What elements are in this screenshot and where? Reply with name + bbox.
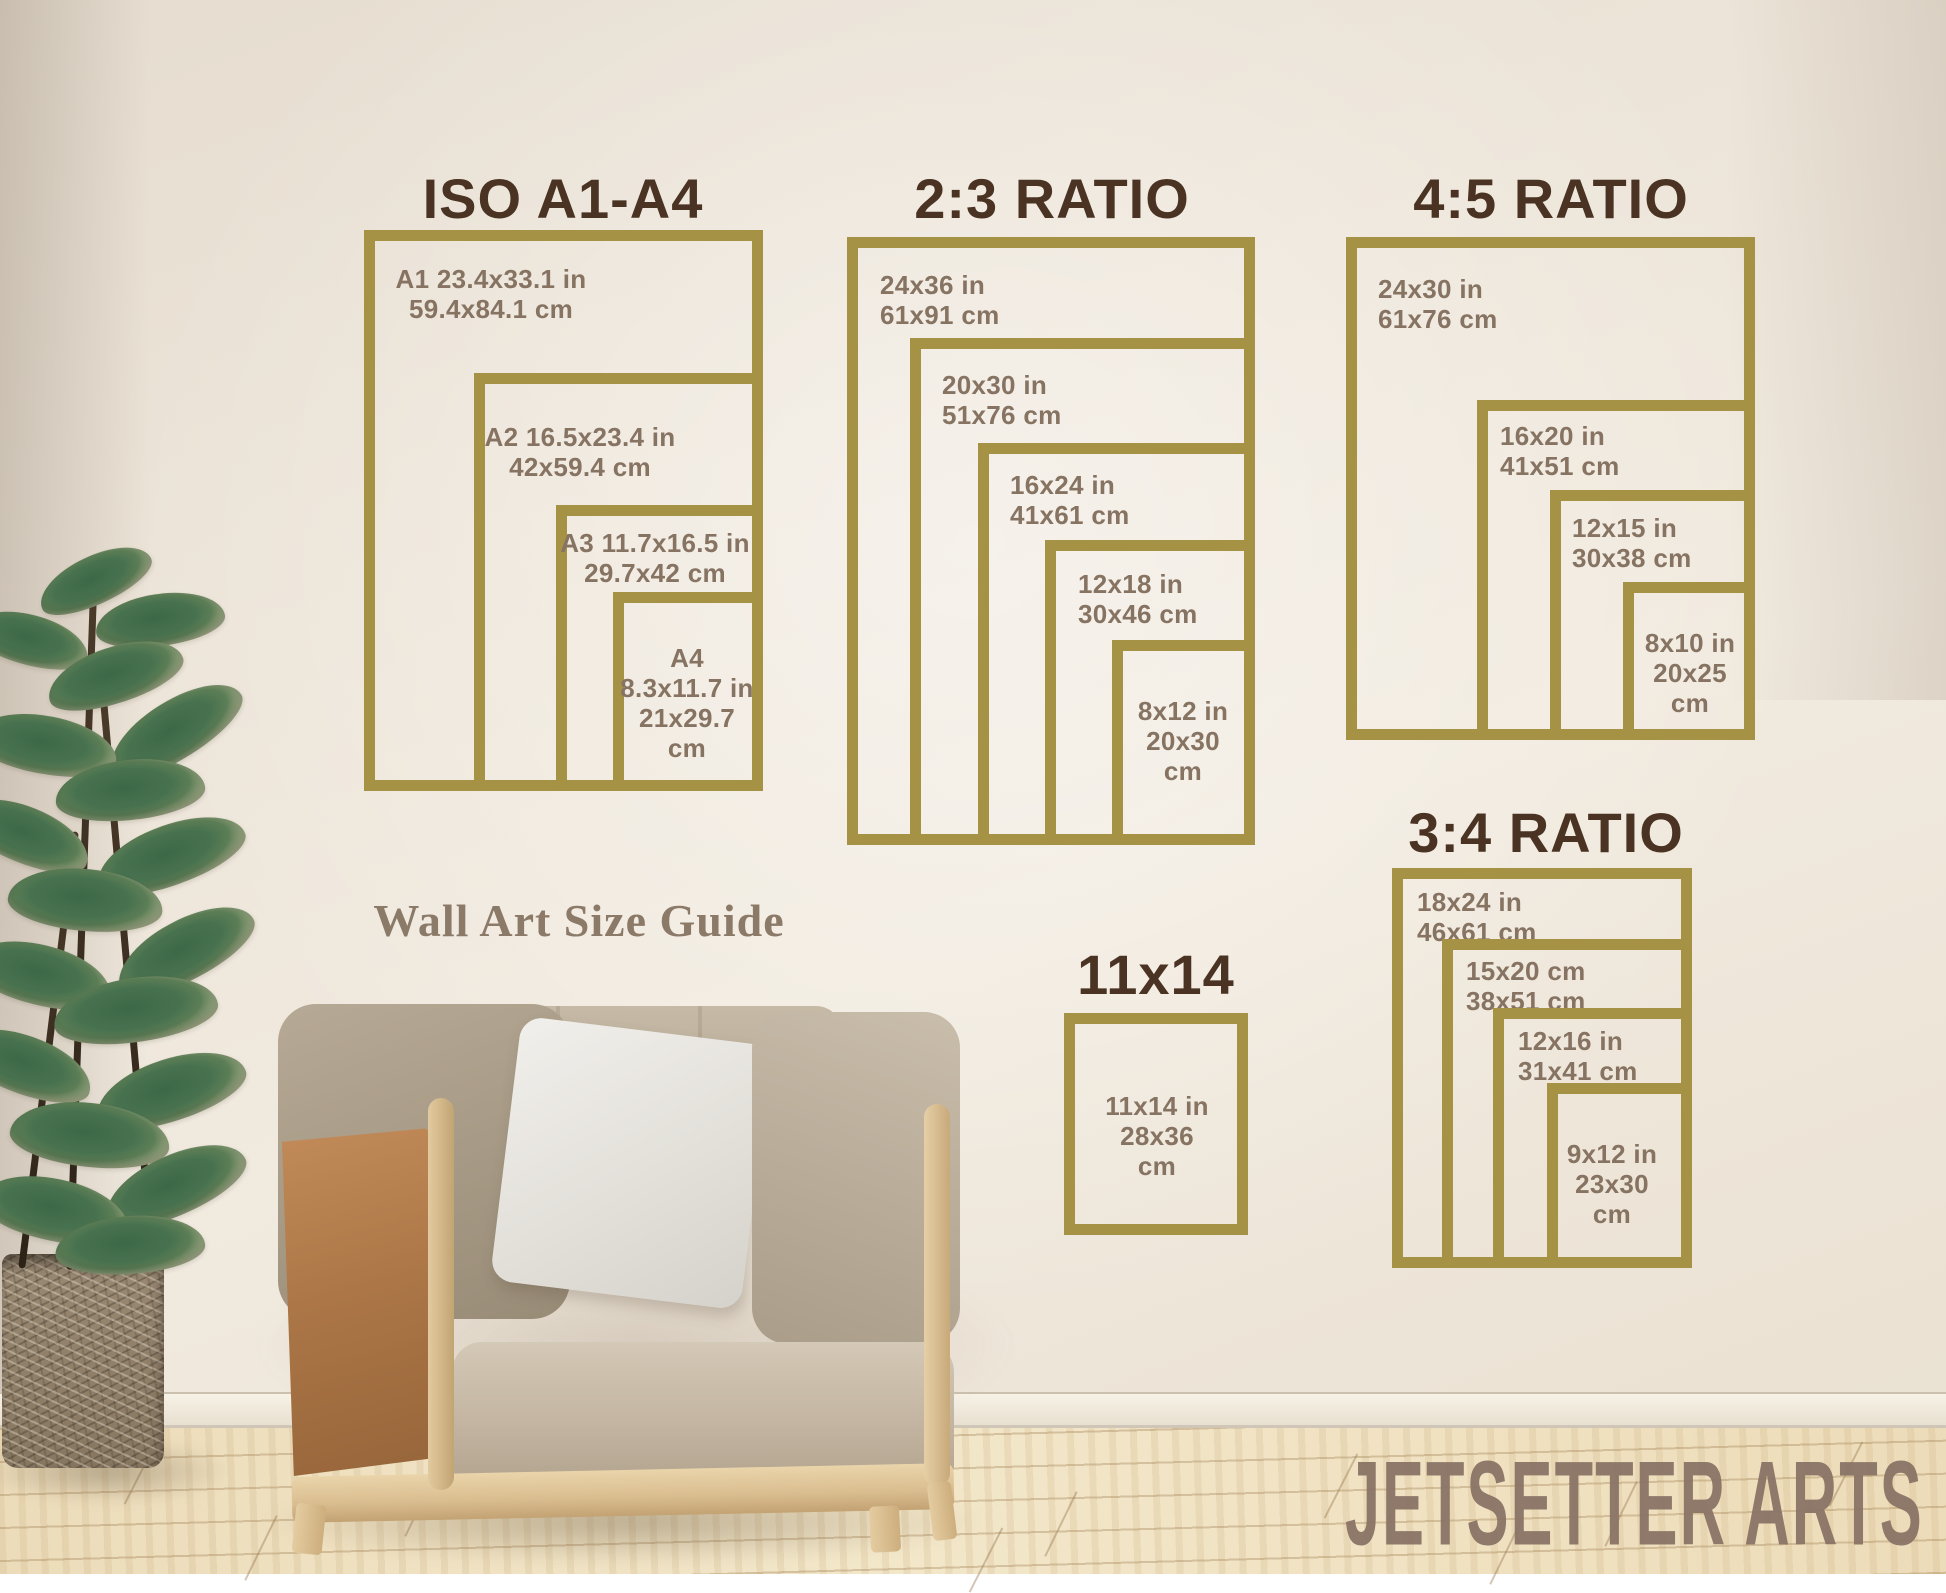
- size-label-A2: A2 16.5x23.4 in 42x59.4 cm: [485, 422, 676, 482]
- section-title: 2:3 RATIO: [914, 166, 1190, 231]
- size-label-9x12: 9x12 in 23x30 cm: [1567, 1139, 1657, 1229]
- chair-leather-side-panel: [282, 1128, 430, 1476]
- size-label-24x30: 24x30 in 61x76 cm: [1378, 274, 1498, 334]
- size-label-A3: A3 11.7x16.5 in 29.7x42 cm: [560, 528, 750, 588]
- size-label-16x24: 16x24 in 41x61 cm: [1010, 470, 1130, 530]
- size-label-A4: A4 8.3x11.7 in 21x29.7 cm: [620, 643, 753, 763]
- section-title: 3:4 RATIO: [1408, 800, 1684, 865]
- size-label-15x20: 15x20 cm 38x51 cm: [1466, 956, 1586, 1016]
- chair-wood-post-left: [428, 1098, 454, 1490]
- size-label-18x24: 18x24 in 46x61 cm: [1417, 887, 1537, 947]
- section-title: 4:5 RATIO: [1413, 166, 1689, 231]
- guide-subtitle: Wall Art Size Guide: [373, 894, 784, 947]
- size-label-12x16: 12x16 in 31x41 cm: [1518, 1026, 1638, 1086]
- brand-watermark: JETSETTER ARTS: [1345, 1436, 1924, 1573]
- chair-leg-front-left: [291, 1503, 326, 1556]
- size-label-24x36: 24x36 in 61x91 cm: [880, 270, 1000, 330]
- size-label-20x30: 20x30 in 51x76 cm: [942, 370, 1062, 430]
- chair-wood-post-right: [924, 1104, 950, 1486]
- plant-pot-basket: [2, 1254, 164, 1468]
- size-label-8x10: 8x10 in 20x25 cm: [1645, 628, 1735, 718]
- size-label-8x12: 8x12 in 20x30 cm: [1138, 696, 1228, 786]
- chair-leg-front-right: [869, 1505, 901, 1553]
- section-title: 11x14: [1077, 942, 1235, 1007]
- size-label-11x14: 11x14 in 28x36 cm: [1105, 1091, 1209, 1181]
- section-title: ISO A1-A4: [423, 166, 704, 231]
- size-label-12x15: 12x15 in 30x38 cm: [1572, 513, 1692, 573]
- size-label-A1: A1 23.4x33.1 in 59.4x84.1 cm: [396, 264, 587, 324]
- size-label-16x20: 16x20 in 41x51 cm: [1500, 421, 1620, 481]
- wall-shade-right: [1726, 0, 1946, 700]
- white-throw-pillow: [490, 1016, 773, 1311]
- size-label-12x18: 12x18 in 30x46 cm: [1078, 569, 1198, 629]
